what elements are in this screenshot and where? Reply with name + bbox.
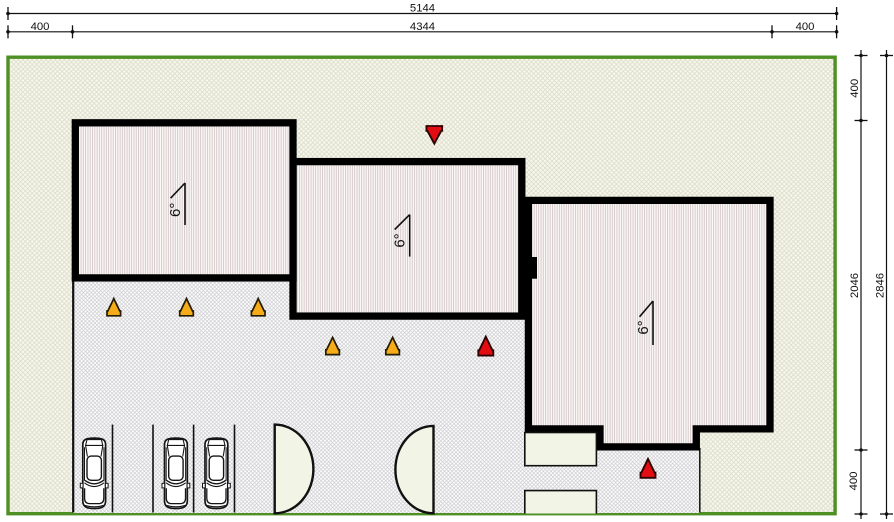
svg-text:5144: 5144 xyxy=(410,3,435,15)
svg-text:400: 400 xyxy=(848,472,860,491)
svg-text:6°: 6° xyxy=(635,320,652,334)
svg-text:2846: 2846 xyxy=(874,273,886,298)
svg-text:4344: 4344 xyxy=(410,21,435,33)
svg-text:2046: 2046 xyxy=(849,273,861,298)
svg-text:6°: 6° xyxy=(167,203,184,217)
svg-text:400: 400 xyxy=(31,21,50,33)
svg-text:6°: 6° xyxy=(391,233,408,247)
svg-text:400: 400 xyxy=(796,21,815,33)
svg-text:400: 400 xyxy=(849,79,861,98)
